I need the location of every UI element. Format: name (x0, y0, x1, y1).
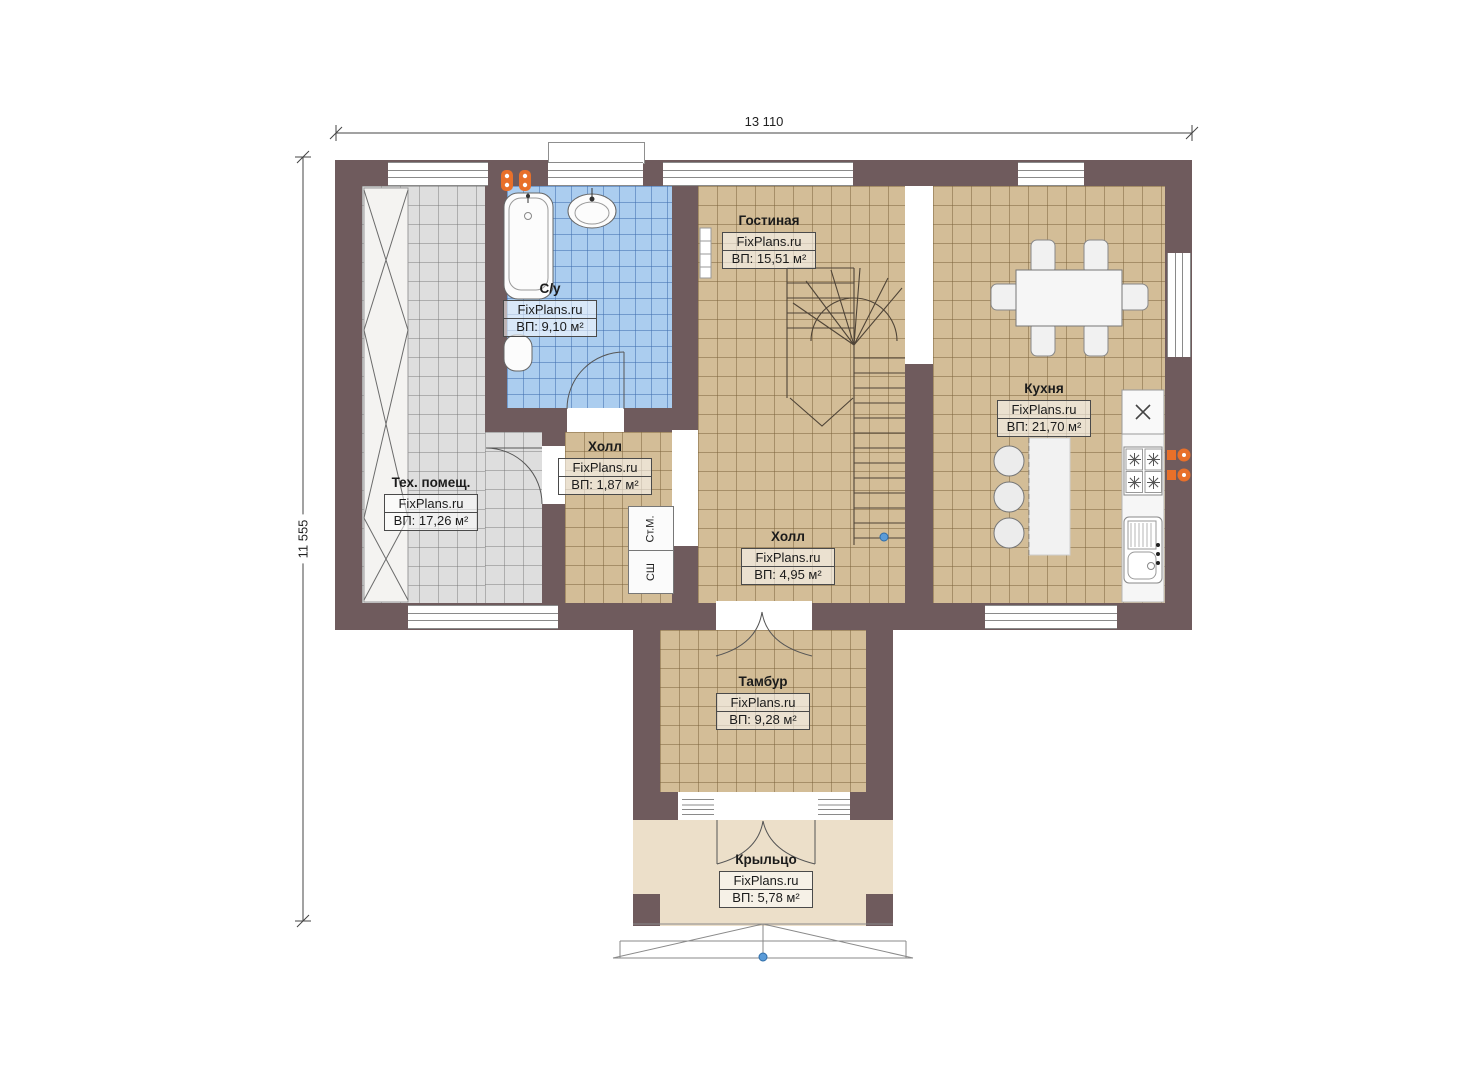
brand-text: FixPlans.ru (723, 233, 815, 251)
stairs-marker-dot (880, 533, 888, 541)
room-title: Тех. помещ. (384, 475, 478, 492)
brand-text: FixPlans.ru (385, 495, 477, 513)
drying-cabinet-label: СШ (645, 563, 657, 581)
room-label-hall-small: Холл FixPlans.ru ВП: 1,87 м² (558, 439, 652, 495)
room-info-box: FixPlans.ru ВП: 4,95 м² (741, 548, 835, 586)
bathroom-door-icon (567, 352, 624, 409)
staircase-icon (787, 268, 905, 545)
plan-linework (0, 0, 1474, 1080)
toilet-icon (504, 335, 532, 371)
power-outlets-bathroom-icon (501, 170, 531, 191)
area-text: ВП: 9,10 м² (504, 319, 596, 336)
truss-x-bracing-icon (364, 188, 408, 602)
room-info-box: FixPlans.ru ВП: 5,78 м² (719, 871, 813, 909)
porch-marker-dot (759, 953, 767, 961)
room-label-kitchen: Кухня FixPlans.ru ВП: 21,70 м² (997, 381, 1091, 437)
room-label-living: Гостиная FixPlans.ru ВП: 15,51 м² (722, 213, 816, 269)
area-text: ВП: 5,78 м² (720, 890, 812, 907)
brand-text: FixPlans.ru (720, 872, 812, 890)
washing-machine-label: Ст.М. (645, 515, 657, 542)
area-text: ВП: 15,51 м² (723, 251, 815, 268)
room-info-box: FixPlans.ru ВП: 21,70 м² (997, 400, 1091, 438)
brand-text: FixPlans.ru (742, 549, 834, 567)
room-title: Тамбур (716, 674, 810, 691)
room-info-box: FixPlans.ru ВП: 17,26 м² (384, 494, 478, 532)
kitchen-sink-icon (1124, 517, 1162, 583)
area-text: ВП: 21,70 м² (998, 419, 1090, 436)
room-title: Гостиная (722, 213, 816, 230)
bathroom-sink-icon (568, 188, 616, 228)
washing-machine-box: Ст.М. (628, 506, 674, 552)
room-label-porch: Крыльцо FixPlans.ru ВП: 5,78 м² (719, 852, 813, 908)
area-text: ВП: 1,87 м² (559, 477, 651, 494)
room-info-box: FixPlans.ru ВП: 9,28 м² (716, 693, 810, 731)
room-title: Холл (741, 529, 835, 546)
floor-plan: Ст.М. СШ Гостиная FixPlans.ru ВП: 15,51 … (0, 0, 1474, 1080)
vestibule-double-door-icon (716, 612, 812, 656)
brand-text: FixPlans.ru (559, 459, 651, 477)
room-title: Крыльцо (719, 852, 813, 869)
room-label-hall-big: Холл FixPlans.ru ВП: 4,95 м² (741, 529, 835, 585)
brand-text: FixPlans.ru (717, 694, 809, 712)
room-info-box: FixPlans.ru ВП: 15,51 м² (722, 232, 816, 270)
bar-stools-icon (994, 446, 1024, 548)
room-title: Кухня (997, 381, 1091, 398)
room-info-box: FixPlans.ru ВП: 9,10 м² (503, 300, 597, 338)
room-label-tech-room: Тех. помещ. FixPlans.ru ВП: 17,26 м² (384, 475, 478, 531)
area-text: ВП: 9,28 м² (717, 712, 809, 729)
drying-cabinet-box: СШ (628, 550, 674, 594)
cabinet-icon (1122, 390, 1164, 434)
brand-text: FixPlans.ru (998, 401, 1090, 419)
room-title: Холл (558, 439, 652, 456)
kitchen-island-icon (1029, 438, 1070, 555)
room-label-bathroom: С/у FixPlans.ru ВП: 9,10 м² (503, 281, 597, 337)
dimension-height-label: 11 555 (296, 515, 311, 564)
brand-text: FixPlans.ru (504, 301, 596, 319)
tech-room-door-icon (486, 448, 542, 504)
room-title: С/у (503, 281, 597, 298)
power-outlets-kitchen-icon (1167, 449, 1191, 482)
dining-set-icon (991, 240, 1148, 356)
radiator-icon (700, 228, 711, 278)
dimension-width-label: 13 110 (740, 114, 789, 129)
stove-icon (1124, 447, 1162, 495)
room-label-vestibule: Тамбур FixPlans.ru ВП: 9,28 м² (716, 674, 810, 730)
area-text: ВП: 4,95 м² (742, 567, 834, 584)
area-text: ВП: 17,26 м² (385, 513, 477, 530)
room-info-box: FixPlans.ru ВП: 1,87 м² (558, 458, 652, 496)
